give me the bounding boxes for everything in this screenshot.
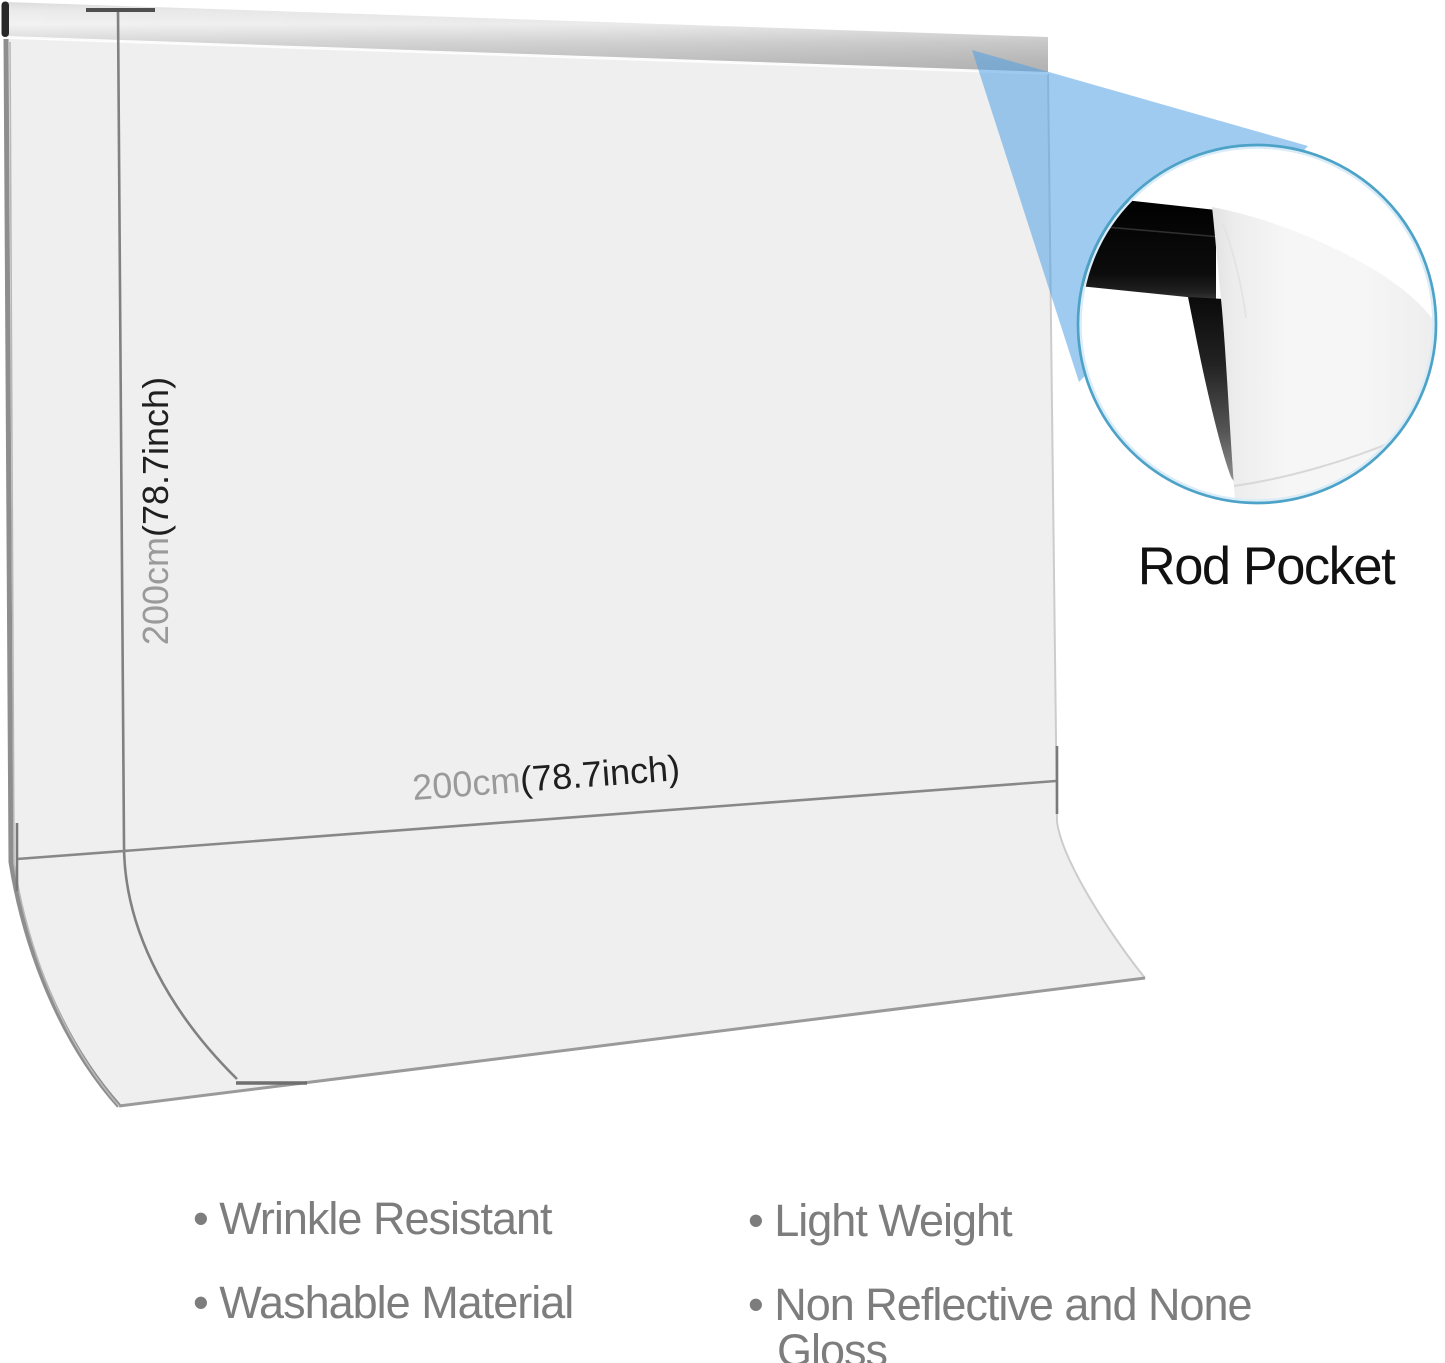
svg-text:200cm(78.7inch): 200cm(78.7inch) [135, 377, 176, 645]
svg-text:Rod Pocket: Rod Pocket [1138, 537, 1396, 596]
